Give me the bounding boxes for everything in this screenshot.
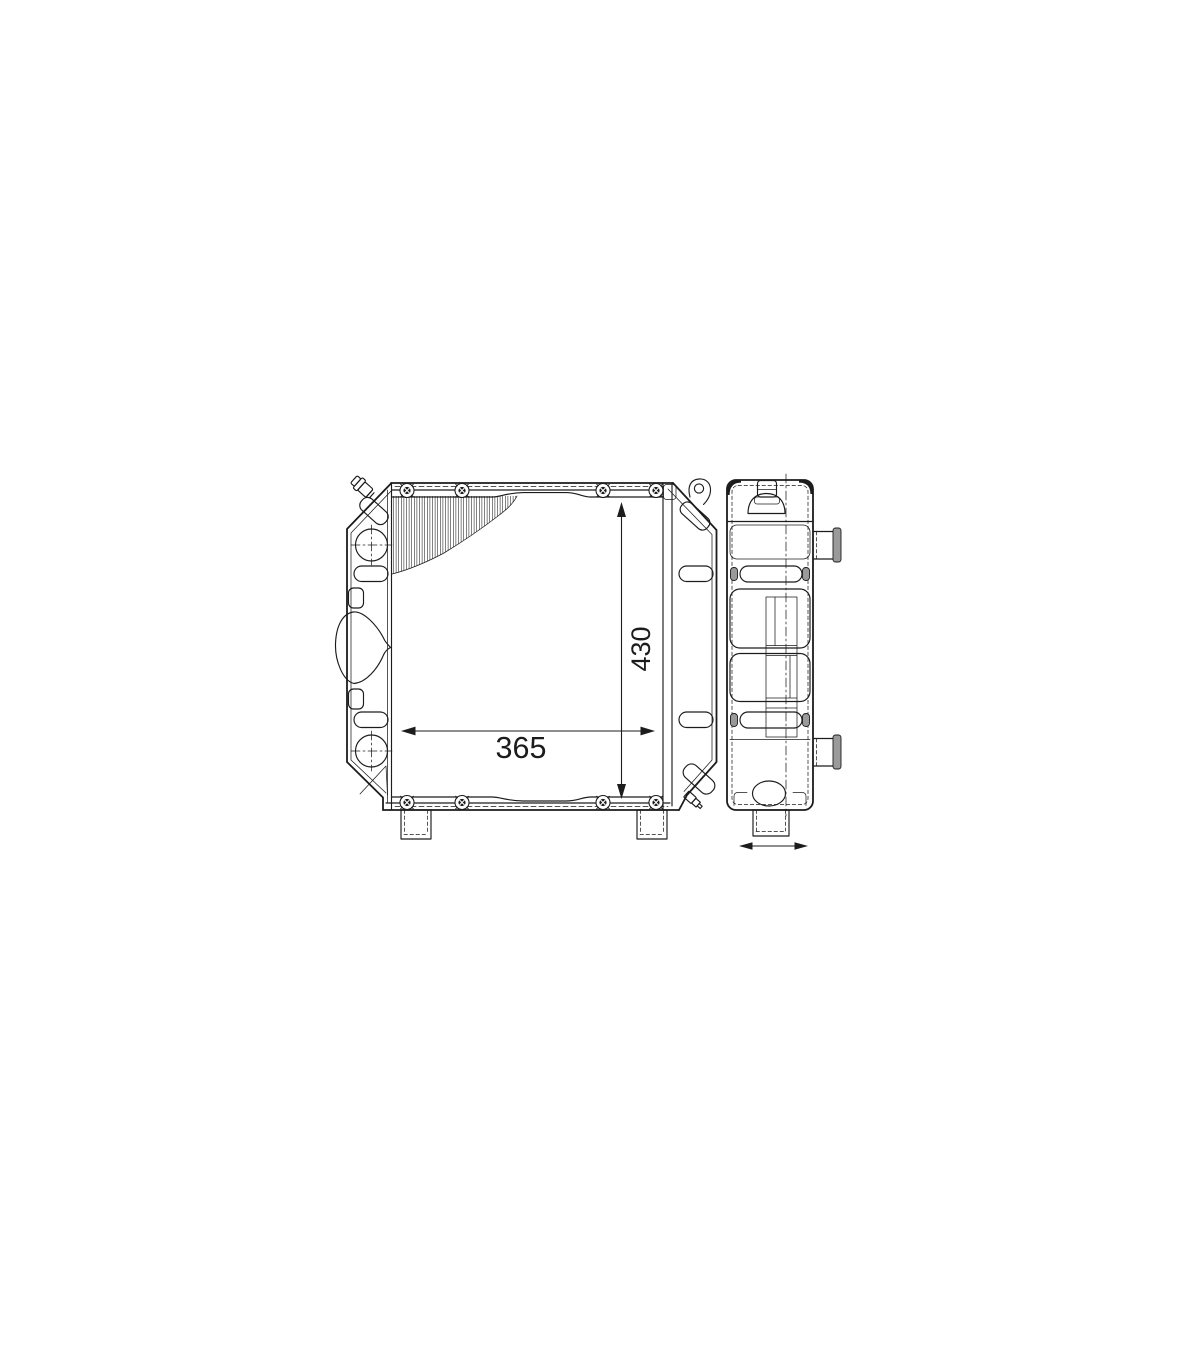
drawing-canvas: 430 365 bbox=[0, 0, 1200, 1372]
left-foot-bracket bbox=[401, 810, 431, 839]
dimension-width: 365 bbox=[401, 727, 655, 765]
width-dimension-label: 365 bbox=[496, 731, 547, 765]
upper-slot bbox=[731, 566, 810, 582]
upper-pipe-stub bbox=[813, 528, 841, 562]
fin-area-boundary bbox=[392, 496, 517, 574]
header-screw bbox=[649, 484, 663, 498]
header-screw bbox=[649, 796, 663, 810]
lower-pipe-opening bbox=[351, 731, 392, 771]
left-mounting-plate bbox=[335, 474, 392, 810]
lower-slot bbox=[731, 712, 810, 728]
dimension-height: 430 bbox=[617, 502, 656, 799]
height-dimension-label: 430 bbox=[626, 626, 656, 671]
right-mounting-plate bbox=[668, 479, 718, 810]
side-foot-bracket bbox=[753, 810, 789, 836]
header-screw bbox=[400, 484, 414, 498]
center-channel bbox=[766, 597, 797, 737]
header-screw bbox=[400, 796, 414, 810]
bottom-opening bbox=[753, 781, 786, 806]
side-view-outline bbox=[727, 480, 813, 810]
drain-plug-icon bbox=[684, 791, 704, 810]
upper-tank-section bbox=[730, 525, 810, 559]
header-screw bbox=[455, 796, 469, 810]
header-screw bbox=[455, 484, 469, 498]
bottom-header-plate bbox=[383, 796, 679, 811]
upper-pipe-opening bbox=[351, 525, 392, 565]
header-screw bbox=[596, 484, 610, 498]
bottom-corner-brackets bbox=[734, 793, 806, 806]
header-screw bbox=[596, 796, 610, 810]
corner-bolt-icon bbox=[349, 474, 376, 500]
mounting-slot bbox=[679, 566, 713, 582]
mounting-slot bbox=[354, 712, 388, 728]
mounting-slot bbox=[679, 712, 713, 728]
center-cutout bbox=[335, 612, 390, 684]
side-view-inner-seam bbox=[732, 486, 808, 805]
radiator-technical-drawing: 430 365 bbox=[0, 0, 1200, 1372]
core-fin-hatching bbox=[394, 495, 516, 576]
side-view bbox=[727, 474, 841, 850]
dimension-depth-arrow bbox=[739, 842, 808, 850]
corner-strap bbox=[357, 495, 391, 528]
lower-pipe-stub bbox=[813, 735, 841, 769]
top-header-plate bbox=[391, 483, 673, 498]
middle-section-upper bbox=[730, 589, 810, 648]
mounting-slot bbox=[354, 566, 388, 582]
front-view bbox=[335, 474, 717, 839]
right-foot-bracket bbox=[637, 810, 667, 839]
middle-section-lower bbox=[730, 654, 810, 702]
